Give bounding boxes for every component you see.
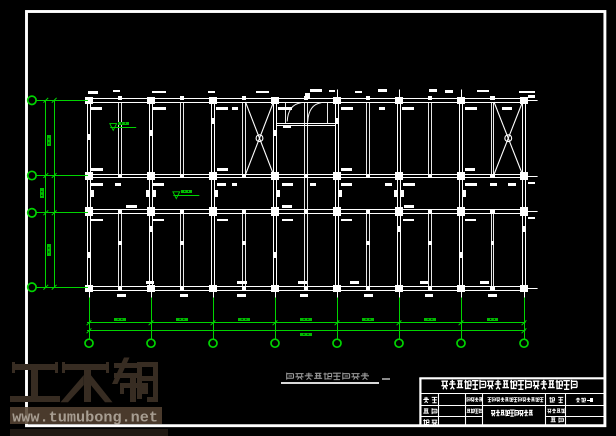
svg-text:www.tumubong.net: www.tumubong.net bbox=[12, 408, 158, 426]
